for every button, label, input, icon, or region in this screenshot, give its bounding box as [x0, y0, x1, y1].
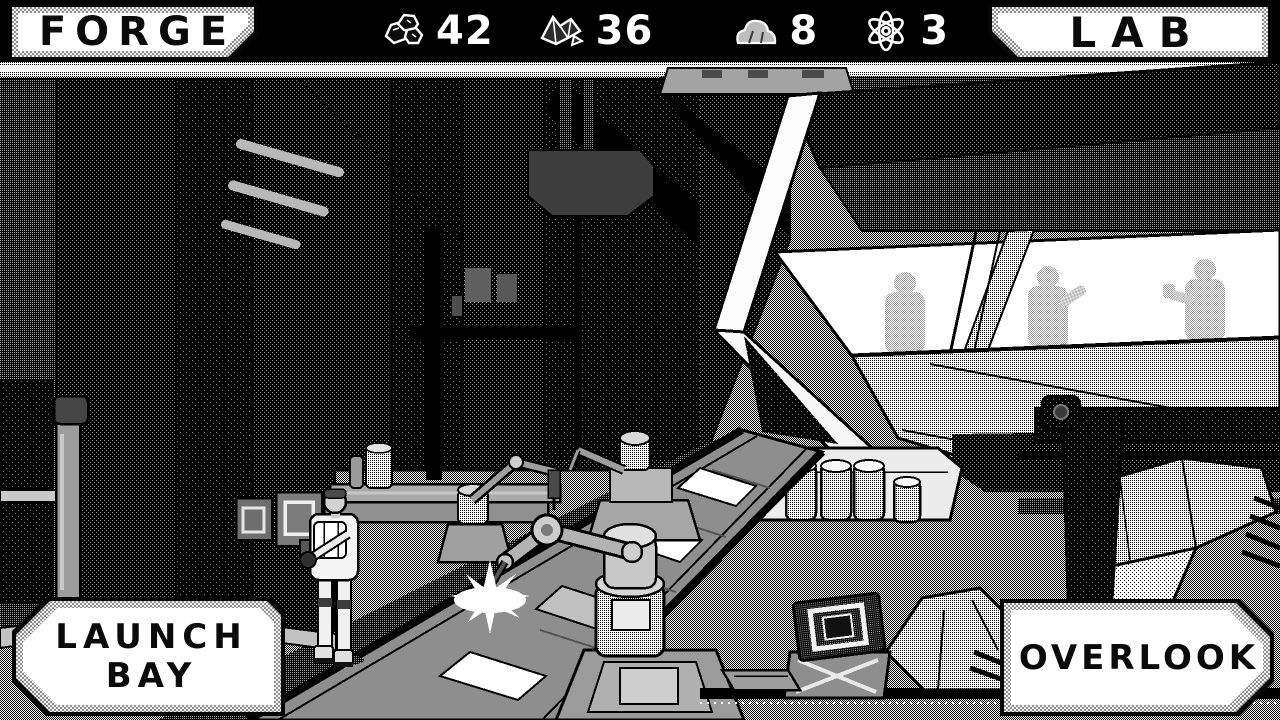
crystal-icon: [538, 10, 586, 52]
resource-crystal: 36: [538, 10, 654, 52]
resource-stone: 8: [733, 10, 818, 52]
resource-atom: 3: [862, 9, 949, 53]
stone-icon: [733, 10, 779, 52]
resource-ore: 42: [380, 10, 494, 52]
ore-icon: [380, 10, 426, 52]
resource-crystal-value: 36: [596, 11, 654, 51]
nav-launch-bay-button[interactable]: LAUNCH BAY: [12, 597, 285, 716]
resource-ore-value: 42: [436, 11, 494, 51]
nav-overlook-button[interactable]: OVERLOOK: [1000, 599, 1274, 716]
atom-icon: [862, 9, 910, 53]
resource-stone-value: 8: [789, 11, 818, 51]
game-screen: 42 36 8 3 FORGE LAB: [0, 0, 1280, 720]
nav-lab-button[interactable]: LAB: [988, 3, 1272, 61]
nav-forge-button[interactable]: FORGE: [8, 3, 258, 61]
overlook-button-label: OVERLOOK: [1019, 638, 1259, 678]
support-pillar: [1062, 408, 1124, 604]
resource-atom-value: 3: [920, 11, 949, 51]
lab-button-label: LAB: [1069, 8, 1205, 57]
forge-button-label: FORGE: [39, 9, 236, 55]
ceiling-vent: [528, 150, 654, 216]
launch-bay-label-line2: BAY: [106, 657, 198, 695]
launch-bay-label-line1: LAUNCH: [55, 618, 247, 656]
resource-bar: 42 36 8 3: [380, 0, 949, 62]
